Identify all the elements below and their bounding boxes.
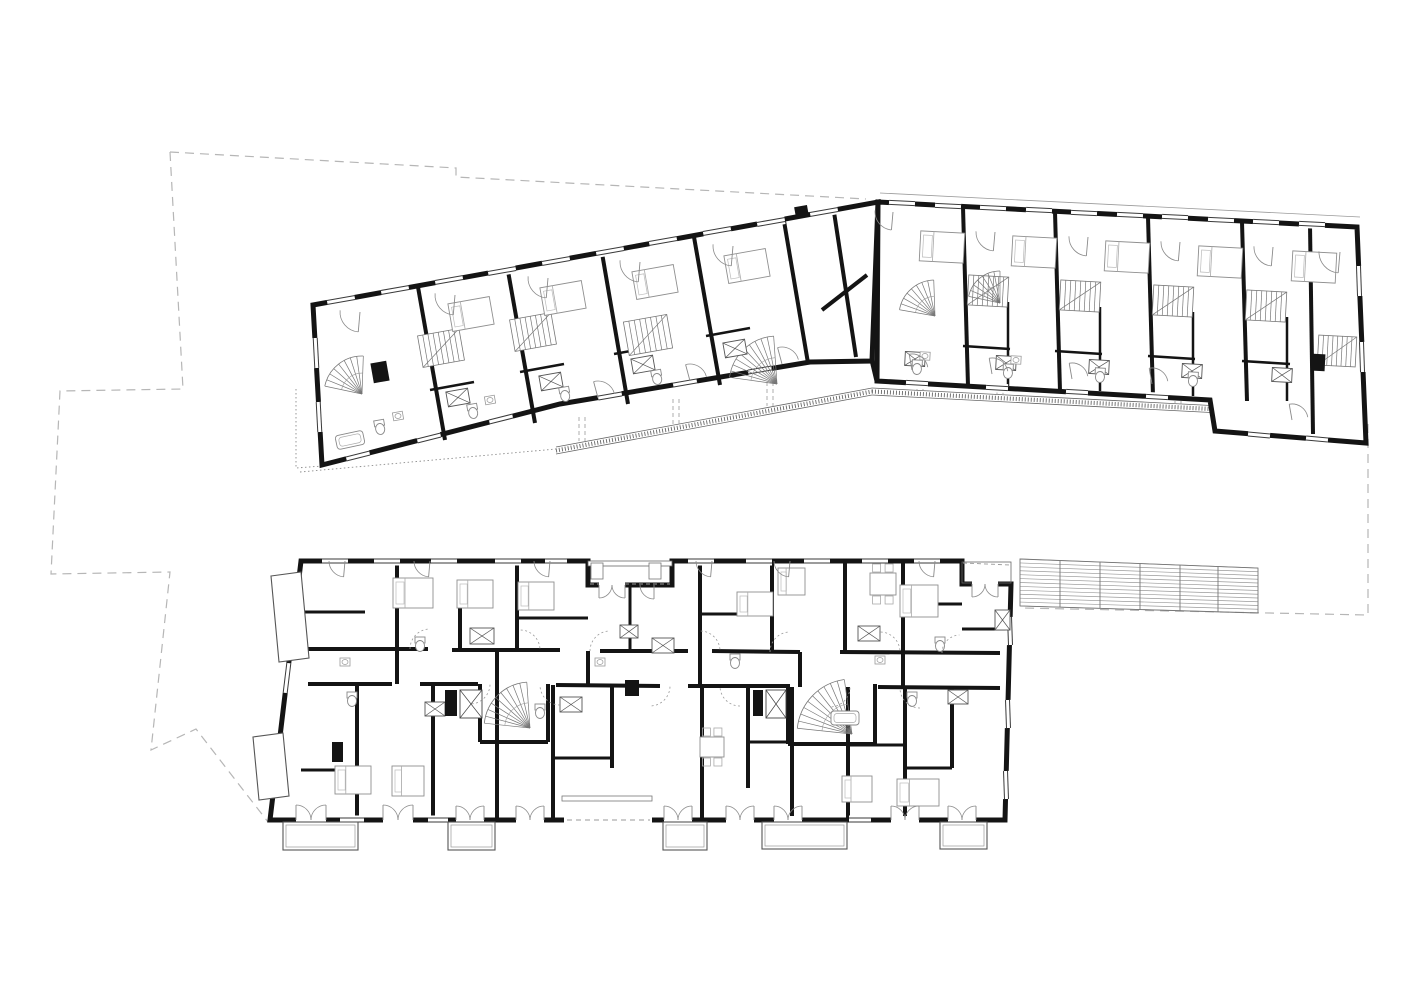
- floor-plan-sheet: [0, 0, 1414, 1000]
- lower-building-tubs: [831, 711, 859, 725]
- floor-plan-drawing: [0, 0, 1414, 1000]
- lower-building: [253, 557, 1015, 851]
